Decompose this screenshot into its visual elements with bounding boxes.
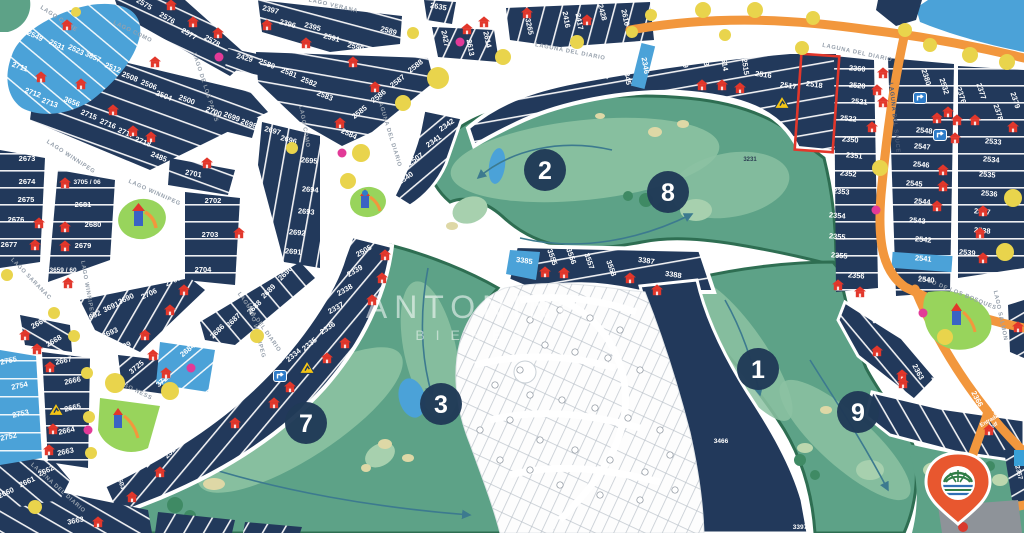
lot-label-2520[interactable]: 2520 — [849, 80, 866, 90]
blue-lot-fan — [0, 350, 42, 465]
map-shape — [810, 470, 820, 480]
lot-label-2680[interactable]: 2680 — [85, 220, 102, 229]
yellow-dot — [695, 2, 711, 18]
golf-hole-1: 1 — [737, 348, 779, 390]
lot-label-2350[interactable]: 2350 — [842, 134, 859, 144]
yellow-dot — [872, 160, 888, 176]
map-shape — [167, 497, 183, 513]
plat-lot-circle — [517, 367, 523, 373]
map-shape — [134, 210, 143, 226]
map-shape — [677, 120, 689, 128]
magenta-dot — [338, 149, 347, 158]
yellow-dot — [719, 29, 731, 41]
lot-label-2535[interactable]: 2535 — [979, 169, 996, 179]
plat-lot-circle — [527, 392, 533, 398]
magenta-dot — [456, 38, 465, 47]
lot-label-2677[interactable]: 2677 — [1, 240, 18, 249]
map-shape: 3 — [434, 391, 448, 419]
lot-label-3466[interactable]: 3466 — [714, 438, 729, 445]
yellow-dot — [1, 269, 13, 281]
plat-lot-circle — [642, 469, 648, 475]
lot-label-2543[interactable]: 2543 — [909, 215, 926, 225]
direction-badge[interactable] — [914, 93, 927, 104]
yellow-dot — [427, 67, 449, 89]
lot-label-2536[interactable]: 2536 — [981, 188, 998, 198]
map-shape — [820, 406, 832, 414]
lot-label-2546[interactable]: 2546 — [913, 159, 930, 169]
lot-label-2360[interactable]: 2360 — [849, 63, 866, 73]
lot-label-2545[interactable]: 2545 — [906, 178, 923, 188]
lot-label-2679[interactable]: 2679 — [75, 241, 92, 250]
yellow-dot — [937, 329, 953, 345]
lot-label-2674[interactable]: 2674 — [19, 177, 37, 186]
lot-label-2694[interactable]: 2694 — [302, 184, 320, 194]
map-stage: ANTONINI BIENES LAGO CISNELAGO COMOLAGO … — [0, 0, 1024, 533]
lot-label-2691[interactable]: 2691 — [285, 246, 302, 256]
map-shape — [648, 127, 662, 137]
lot-label-2355[interactable]: 2355 — [829, 231, 846, 241]
lot-label-2354[interactable]: 2354 — [829, 210, 847, 220]
plat-lot-circle — [527, 467, 533, 473]
plat-lot-circle — [477, 427, 483, 433]
yellow-dot — [626, 26, 638, 38]
yellow-dot — [250, 329, 264, 343]
lot-label-3659-60[interactable]: 3659 / 60 — [49, 267, 76, 274]
plat-lot-circle — [492, 382, 498, 388]
lot-label-2542[interactable]: 2542 — [915, 234, 932, 244]
map-shape — [0, 150, 45, 268]
yellow-dot — [83, 411, 95, 423]
map-canvas[interactable]: ANTONINI BIENES LAGO CISNELAGO COMOLAGO … — [0, 0, 1024, 533]
lot-label-2703[interactable]: 2703 — [202, 230, 219, 239]
map-shape — [402, 454, 414, 462]
lot-label-2351[interactable]: 2351 — [846, 150, 863, 160]
lot-label-2695[interactable]: 2695 — [301, 155, 318, 165]
lot-label-2676[interactable]: 2676 — [8, 215, 25, 224]
map-shape — [794, 454, 806, 466]
plat-lot-circle — [507, 417, 513, 423]
plat-lot-circle — [637, 497, 643, 503]
lot-label-2534[interactable]: 2534 — [983, 154, 1001, 164]
plat-lot-circle — [572, 349, 578, 355]
direction-badge[interactable] — [934, 130, 947, 141]
lot-label-2533[interactable]: 2533 — [985, 136, 1002, 146]
plat-lot-circle — [667, 452, 673, 458]
yellow-dot — [806, 11, 820, 25]
yellow-dot — [495, 49, 511, 65]
plat-lot-circle — [497, 457, 503, 463]
map-shape: 9 — [851, 399, 865, 427]
map-shape — [361, 195, 369, 208]
map-shape: 2 — [538, 157, 552, 185]
golf-hole-3: 3 — [420, 383, 462, 425]
golf-hole-9: 9 — [837, 391, 879, 433]
yellow-dot — [898, 23, 912, 37]
yellow-dot — [340, 173, 356, 189]
yellow-dot — [795, 41, 809, 55]
watermark-line2: BIENES — [415, 327, 532, 343]
yellow-dot — [28, 500, 42, 514]
plat-lot-circle — [542, 342, 548, 348]
yellow-dot — [395, 95, 411, 111]
map-shape — [378, 439, 392, 449]
map-shape — [992, 474, 1008, 486]
lot-label-2702[interactable]: 2702 — [205, 196, 222, 205]
yellow-dot — [352, 144, 370, 162]
plat-lot-circle — [557, 482, 563, 488]
watermark-line1: ANTONINI — [366, 289, 574, 325]
lot-label-2704[interactable]: 2704 — [195, 265, 213, 274]
map-shape — [623, 191, 633, 201]
lot-label-2521[interactable]: 2521 — [851, 96, 868, 106]
yellow-dot — [1004, 189, 1022, 207]
plat-lot-circle — [597, 492, 603, 498]
magenta-dot — [187, 364, 196, 373]
yellow-dot — [48, 307, 60, 319]
plat-lot-circle — [607, 457, 613, 463]
yellow-dot — [105, 373, 125, 393]
lot-label-3231[interactable]: 3231 — [743, 157, 757, 163]
lot-label-2539[interactable]: 2539 — [959, 247, 976, 257]
golf-hole-7: 7 — [285, 402, 327, 444]
water-feature — [1014, 450, 1024, 466]
plat-lot-circle — [617, 327, 623, 333]
magenta-dot — [215, 53, 224, 62]
lot-label-2541[interactable]: 2541 — [915, 253, 932, 263]
direction-badge[interactable] — [274, 371, 287, 382]
lot-label-2355[interactable]: 2355 — [831, 250, 848, 260]
lot-label-2548[interactable]: 2548 — [916, 125, 933, 135]
yellow-dot — [407, 27, 419, 39]
lot-label-2693[interactable]: 2693 — [298, 206, 315, 216]
lot-label-2692[interactable]: 2692 — [289, 227, 306, 237]
lot-label-2544[interactable]: 2544 — [914, 196, 932, 206]
map-shape — [856, 460, 884, 480]
map-shape: 1 — [751, 356, 765, 384]
map-shape: 8 — [661, 179, 675, 207]
map-shape — [203, 478, 225, 490]
plat-lot-circle — [637, 367, 643, 373]
lot-label-2681[interactable]: 2681 — [75, 200, 92, 209]
plat-lot-circle — [657, 427, 663, 433]
magenta-dot — [872, 206, 881, 215]
plat-lot-circle — [587, 315, 593, 321]
yellow-dot — [85, 447, 97, 459]
map-shape — [362, 190, 368, 196]
lot-label-3705-06[interactable]: 3705 / 06 — [73, 179, 100, 186]
yellow-dot — [570, 35, 584, 49]
lot-label-2673[interactable]: 2673 — [19, 154, 36, 163]
magenta-dot — [919, 309, 928, 318]
plat-lot-circle — [672, 487, 678, 493]
yellow-dot — [71, 7, 81, 17]
yellow-dot — [996, 243, 1014, 261]
lot-label-2675[interactable]: 2675 — [18, 195, 35, 204]
map-shape: 7 — [299, 410, 313, 438]
yellow-dot — [923, 38, 937, 52]
plat-lot-circle — [605, 355, 611, 361]
golf-hole-8: 8 — [647, 171, 689, 213]
lot-label-2352[interactable]: 2352 — [840, 168, 857, 178]
lot-label-2522[interactable]: 2522 — [840, 113, 857, 123]
lot-label-2540[interactable]: 2540 — [918, 274, 935, 284]
yellow-dot — [645, 9, 657, 21]
lot-label-2353[interactable]: 2353 — [833, 186, 850, 196]
yellow-dot — [747, 2, 763, 18]
plat-lot-circle — [592, 405, 598, 411]
yellow-dot — [161, 382, 179, 400]
yellow-dot — [962, 47, 978, 63]
plat-lot-circle — [537, 437, 543, 443]
golf-hole-2: 2 — [524, 149, 566, 191]
map-shape — [114, 414, 122, 428]
map-shape — [952, 310, 961, 325]
map-shape — [361, 464, 371, 472]
magenta-dot — [84, 426, 93, 435]
yellow-dot — [81, 367, 93, 379]
map-shape — [595, 113, 605, 119]
yellow-dot — [999, 54, 1015, 70]
map-shape — [797, 443, 813, 453]
plat-lot-circle — [572, 447, 578, 453]
yellow-dot — [68, 330, 80, 342]
plat-lot-circle — [559, 397, 565, 403]
plat-lot-circle — [625, 415, 631, 421]
lot-label-2356[interactable]: 2356 — [848, 270, 865, 280]
lot-label-3397[interactable]: 3397 — [793, 524, 808, 531]
yellow-dot — [286, 142, 298, 154]
lot-label-2547[interactable]: 2547 — [914, 141, 931, 151]
map-shape — [446, 222, 458, 230]
